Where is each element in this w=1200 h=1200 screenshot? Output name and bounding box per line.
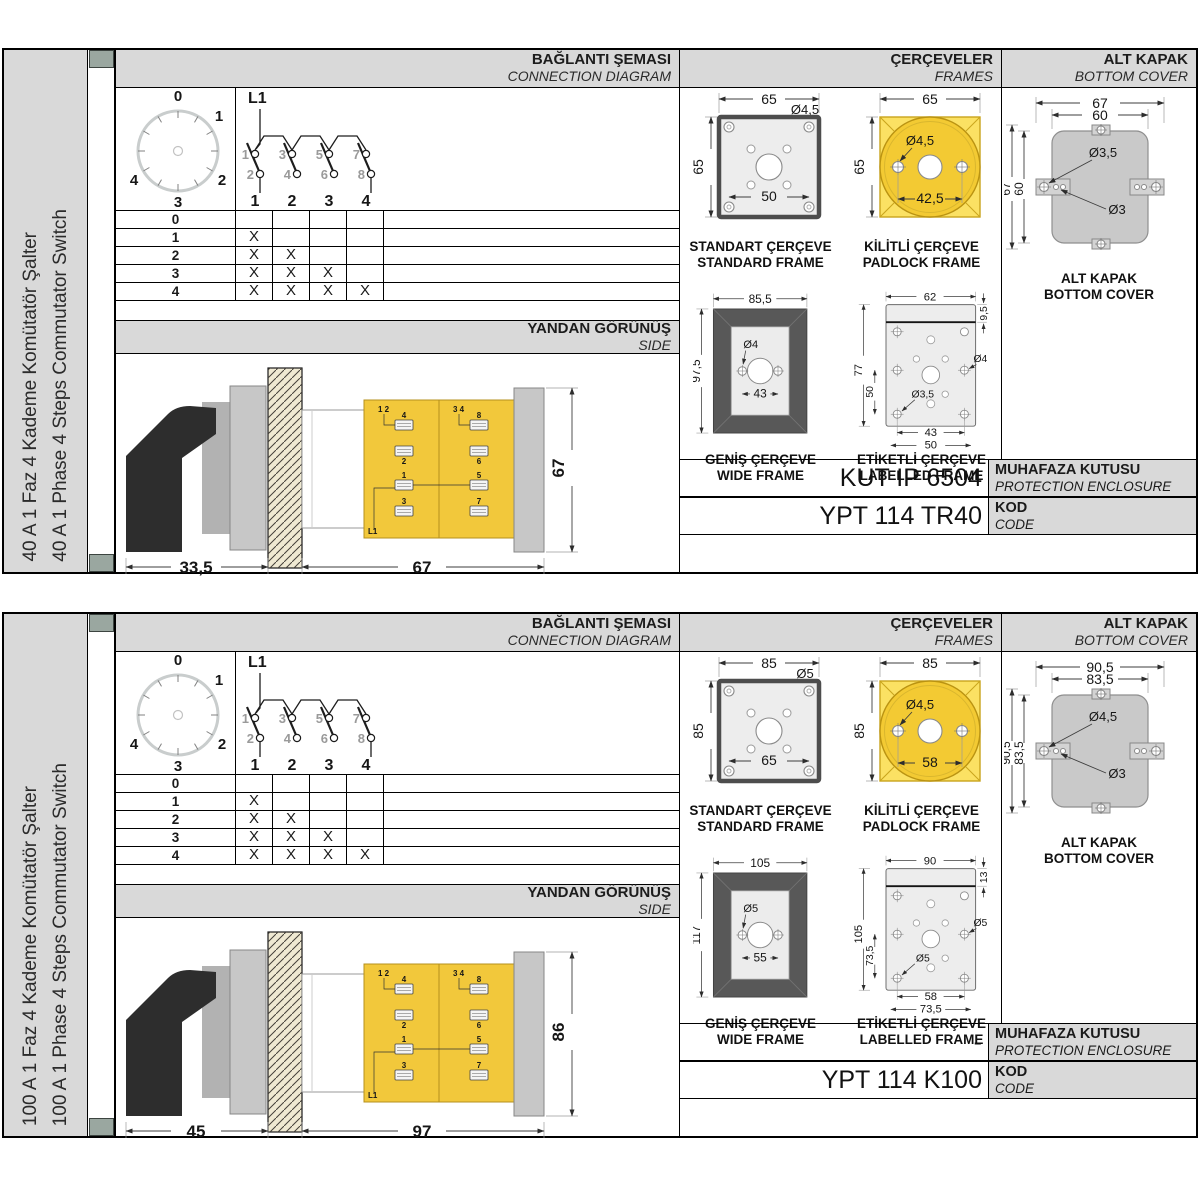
section-100a-switch: 100 A 1 Faz 4 Kademe Komütatör Şalter 10… <box>2 612 1198 1138</box>
dim-width: 65 <box>922 91 938 107</box>
dial-pos-2: 2 <box>218 172 226 189</box>
mark-cell <box>347 247 384 264</box>
mark-cell <box>310 775 347 792</box>
header-connection-tr: BAĞLANTI ŞEMASI <box>532 52 671 69</box>
pole-1: 1 <box>251 193 260 210</box>
filler-cell <box>384 247 679 264</box>
terminal-number: 2 <box>402 1021 407 1030</box>
terminal-number: 3 <box>402 497 407 506</box>
mark-cell <box>310 811 347 828</box>
row-label: 1 <box>116 793 236 810</box>
mark-cell <box>273 793 310 810</box>
table-row: 0 <box>116 210 679 228</box>
terminal-number: 8 <box>477 975 482 984</box>
enclosure-label-en: PROTECTION ENCLOSURE <box>995 479 1196 494</box>
housing <box>302 410 364 528</box>
side-view-cell: 1 2 3 4 4 2 8 6 1 3 5 7 L1 <box>116 354 679 572</box>
terminal-pair-label: 1 2 <box>378 969 390 978</box>
mark-cell: X <box>236 829 273 846</box>
side-header-en: SIDE <box>638 902 671 918</box>
contact-diagram: L1 <box>236 87 680 210</box>
terminal-pair-label: 3 4 <box>453 405 465 414</box>
pole-4: 4 <box>362 757 371 774</box>
product-title-english: 40 A 1 Phase 4 Steps Commutator Switch <box>50 209 72 562</box>
dim-inner-height: 73,5 <box>865 945 876 965</box>
header-frames-en: FRAMES <box>935 69 993 85</box>
side-view-cell: 1 2 3 4 4 2 8 6 1 3 5 7 L1 <box>116 918 679 1136</box>
enclosure-row: KUT IP 6504 MUHAFAZA KUTUSU PROTECTION E… <box>680 459 1196 496</box>
contact-5: 5 <box>316 711 323 726</box>
dim-height: 97,5 <box>693 359 703 383</box>
dial-pos-2: 2 <box>218 736 226 753</box>
back-plate <box>514 952 544 1116</box>
table-row: 4 X X X X <box>116 846 679 864</box>
contact-2: 2 <box>247 731 254 746</box>
mark-cell <box>236 775 273 792</box>
row-label: 0 <box>116 775 236 792</box>
table-row: 4 X X X X <box>116 282 679 300</box>
contacts-cell: L1 <box>236 651 679 774</box>
header-frames: ÇERÇEVELER FRAMES <box>680 50 1002 87</box>
bottom-cover-column: 67 60 67 60 <box>1002 87 1196 459</box>
dim-inner-height: 50 <box>865 386 876 398</box>
corner-marker-top <box>89 614 114 632</box>
hole-diameter-right: Ø5 <box>973 918 987 929</box>
dial-pos-1: 1 <box>215 672 223 689</box>
hole-diameter-tab: Ø4,5 <box>1089 709 1117 724</box>
contact-7: 7 <box>353 711 360 726</box>
mark-cell: X <box>236 793 273 810</box>
terminal-number: 2 <box>402 457 407 466</box>
front-plate <box>230 386 266 550</box>
dim-height: 67 <box>549 459 568 478</box>
pole-2: 2 <box>288 193 297 210</box>
caption-en: PADLOCK FRAME <box>841 819 1002 835</box>
dim-hole-pitch: 65 <box>761 752 777 768</box>
code-row: YPT 114 TR40 KOD CODE <box>680 496 1196 535</box>
enclosure-label: MUHAFAZA KUTUSU PROTECTION ENCLOSURE <box>988 1024 1196 1060</box>
contact-4: 4 <box>284 731 292 746</box>
dial-pos-3: 3 <box>174 758 182 774</box>
product-title-turkish: 100 A 1 Faz 4 Kademe Komütatör Şalter <box>20 786 42 1126</box>
padlock-frame-drawing: 65 65 <box>842 87 1002 239</box>
row-label: 4 <box>116 847 236 864</box>
terminal-number: 4 <box>402 411 407 420</box>
bottom-cover-drawing: 90,5 83,5 90,5 83,5 <box>1004 659 1194 835</box>
code-row: YPT 114 K100 KOD CODE <box>680 1060 1196 1099</box>
wide-frame-drawing: 85,5 Ø4 <box>693 290 829 452</box>
bottom-cover-column: 90,5 83,5 90,5 83,5 <box>1002 651 1196 1023</box>
dim-pitch-1: 58 <box>924 991 936 1003</box>
phase-l1-label: L1 <box>248 90 267 107</box>
dim-width: 85,5 <box>748 292 772 306</box>
mark-cell: X <box>236 283 273 300</box>
hole-diameter: Ø4,5 <box>905 697 933 712</box>
header-cover-tr: ALT KAPAK <box>1104 52 1188 69</box>
dim-height: 117 <box>693 925 703 944</box>
filler-cell <box>384 829 679 846</box>
caption-tr: KİLİTLİ ÇERÇEVE <box>841 239 1002 255</box>
mark-cell: X <box>273 829 310 846</box>
filler-cell <box>384 775 679 792</box>
mark-cell <box>347 793 384 810</box>
mark-cell <box>347 229 384 246</box>
dim-pitch-1: 43 <box>924 427 936 439</box>
bottom-cover-drawing: 67 60 67 60 <box>1004 95 1194 271</box>
connection-column: 0 1 2 3 4 L1 <box>116 87 680 572</box>
housing <box>302 974 364 1092</box>
dim-width-inner: 83,5 <box>1086 671 1113 687</box>
hole-diameter-tab: Ø3,5 <box>1089 145 1117 160</box>
product-code-value: YPT 114 TR40 <box>680 498 988 534</box>
contact-3: 3 <box>279 711 286 726</box>
header-frames-en: FRAMES <box>935 633 993 649</box>
enclosure-row: - MUHAFAZA KUTUSU PROTECTION ENCLOSURE <box>680 1023 1196 1060</box>
section-40a-switch: 40 A 1 Faz 4 Kademe Komütatör Şalter 40 … <box>2 48 1198 574</box>
hole-diameter: Ø5 <box>743 903 758 915</box>
table-row: 1 X <box>116 792 679 810</box>
back-plate <box>514 388 544 552</box>
dim-height: 85 <box>851 723 867 739</box>
terminal-l1: L1 <box>368 1091 378 1100</box>
pole-4: 4 <box>362 193 371 210</box>
terminal-number: 5 <box>477 471 482 480</box>
header-connection-en: CONNECTION DIAGRAM <box>508 633 671 649</box>
dim-pitch-2: 50 <box>924 440 936 452</box>
mark-cell <box>347 829 384 846</box>
connection-column: 0 1 2 3 4 L1 <box>116 651 680 1136</box>
padlock-frame-cell: 85 85 <box>841 651 1002 854</box>
side-view-drawing: 1 2 3 4 4 2 8 6 1 3 5 7 L1 <box>116 362 680 580</box>
mark-cell: X <box>310 283 347 300</box>
contact-8: 8 <box>358 731 365 746</box>
wide-frame-drawing: 105 Ø5 <box>693 854 829 1016</box>
mark-cell: X <box>236 847 273 864</box>
mark-cell: X <box>273 265 310 282</box>
filler-cell <box>384 793 679 810</box>
dial-pos-0: 0 <box>174 88 182 105</box>
dim-width-inner: 60 <box>1092 107 1108 123</box>
dim-height: 65 <box>851 159 867 175</box>
dim-width: 85 <box>761 655 777 671</box>
hole-diameter-small: Ø3 <box>1108 766 1125 781</box>
terminal-l1: L1 <box>368 527 378 536</box>
mark-cell <box>347 265 384 282</box>
switching-table: 0 1 X 2 X X <box>116 210 679 301</box>
wide-frame-cell: 105 Ø5 <box>680 854 841 1023</box>
enclosure-value: KUT IP 6504 <box>680 460 988 496</box>
table-row: 3 X X X <box>116 264 679 282</box>
caption-en: PADLOCK FRAME <box>841 255 1002 271</box>
dim-height-inner: 83,5 <box>1012 741 1026 765</box>
code-rows: KUT IP 6504 MUHAFAZA KUTUSU PROTECTION E… <box>680 459 1196 535</box>
mark-cell <box>236 211 273 228</box>
caption-tr: ALT KAPAK <box>1002 271 1196 287</box>
mark-cell <box>273 211 310 228</box>
filler-cell <box>384 229 679 246</box>
corner-marker-bottom <box>89 1118 114 1136</box>
column-headers: BAĞLANTI ŞEMASI CONNECTION DIAGRAM ÇERÇE… <box>116 50 1196 88</box>
row-label: 3 <box>116 265 236 282</box>
pole-2: 2 <box>288 757 297 774</box>
front-plate <box>230 950 266 1114</box>
contacts-cell: L1 <box>236 87 679 210</box>
contact-diagram: L1 <box>236 651 680 774</box>
code-label: KOD CODE <box>988 498 1196 534</box>
mark-cell: X <box>236 247 273 264</box>
padlock-frame-drawing: 85 85 <box>842 651 1002 803</box>
dim-body-length: 67 <box>413 558 432 577</box>
standard-frame-cell: 65 Ø4,5 65 <box>680 87 841 290</box>
corner-marker-top <box>89 50 114 68</box>
pole-3: 3 <box>325 757 334 774</box>
contact-1: 1 <box>242 711 249 726</box>
mark-cell: X <box>347 283 384 300</box>
mark-cell <box>310 247 347 264</box>
row-label: 4 <box>116 283 236 300</box>
catalog-page: { "colors": { "accent_yellow": "#f2c83b"… <box>0 0 1200 1200</box>
caption-tr: KİLİTLİ ÇERÇEVE <box>841 803 1002 819</box>
standard-frame-cell: 85 Ø5 85 <box>680 651 841 854</box>
mark-cell: X <box>273 247 310 264</box>
dim-handle-depth: 45 <box>187 1122 206 1141</box>
dim-width: 90 <box>923 856 935 868</box>
mark-cell <box>347 775 384 792</box>
caption-en: STANDARD FRAME <box>680 255 841 271</box>
header-bottom-cover: ALT KAPAK BOTTOM COVER <box>1002 614 1196 651</box>
dim-height-inner: 60 <box>1012 182 1026 196</box>
dial-pos-3: 3 <box>174 194 182 210</box>
mark-cell <box>273 229 310 246</box>
code-label-en: CODE <box>995 517 1196 532</box>
dim-handle-depth: 33,5 <box>179 558 212 577</box>
enclosure-label-tr: MUHAFAZA KUTUSU <box>995 1026 1196 1042</box>
hole-diameter-right: Ø4 <box>973 354 987 365</box>
dim-hole-pitch: 42,5 <box>916 190 943 206</box>
filler-cell <box>384 211 679 228</box>
dim-width: 62 <box>923 292 935 304</box>
standard-frame-drawing: 65 Ø4,5 65 <box>681 87 841 239</box>
code-label-tr: KOD <box>995 1064 1196 1080</box>
section-sidebar: 100 A 1 Faz 4 Kademe Komütatör Şalter 10… <box>4 614 88 1136</box>
terminal-pair-label: 3 4 <box>453 969 465 978</box>
pole-1: 1 <box>251 757 260 774</box>
header-frames-tr: ÇERÇEVELER <box>890 616 993 633</box>
terminal-number: 1 <box>402 471 407 480</box>
mark-cell <box>310 793 347 810</box>
dim-hole-pitch: 58 <box>922 754 938 770</box>
table-row: 2 X X <box>116 810 679 828</box>
mark-cell: X <box>310 829 347 846</box>
dim-width: 65 <box>761 91 777 107</box>
header-connection-diagram: BAĞLANTI ŞEMASI CONNECTION DIAGRAM <box>116 50 680 87</box>
dim-pitch-2: 73,5 <box>919 1004 941 1016</box>
phase-l1-label: L1 <box>248 654 267 671</box>
dial-pos-4: 4 <box>130 736 139 753</box>
code-label: KOD CODE <box>988 1062 1196 1098</box>
terminal-number: 7 <box>477 497 482 506</box>
row-label: 3 <box>116 829 236 846</box>
terminal-pair-label: 1 2 <box>378 405 390 414</box>
mark-cell <box>347 211 384 228</box>
mark-cell: X <box>236 229 273 246</box>
mark-cell: X <box>273 811 310 828</box>
side-header-en: SIDE <box>638 338 671 354</box>
contact-4: 4 <box>284 167 292 182</box>
dim-height: 86 <box>549 1023 568 1042</box>
mark-cell: X <box>236 811 273 828</box>
dim-width: 85 <box>922 655 938 671</box>
hole-diameter-left: Ø3,5 <box>911 389 934 400</box>
filler-cell <box>384 847 679 864</box>
contact-3: 3 <box>279 147 286 162</box>
switching-table: 0 1 X 2 X X <box>116 774 679 865</box>
mark-cell: X <box>310 265 347 282</box>
contact-1: 1 <box>242 147 249 162</box>
dim-strip: 13 <box>978 871 989 883</box>
caption-en: STANDARD FRAME <box>680 819 841 835</box>
contact-6: 6 <box>321 731 328 746</box>
hole-diameter-left: Ø5 <box>915 953 929 964</box>
labelled-frame-drawing: 62 9,5 77 50 <box>854 290 990 452</box>
filler-cell <box>384 265 679 282</box>
dim-hole-pitch: 43 <box>753 386 767 400</box>
mark-cell <box>273 775 310 792</box>
enclosure-label-en: PROTECTION ENCLOSURE <box>995 1043 1196 1058</box>
mark-cell: X <box>273 283 310 300</box>
standard-frame-drawing: 85 Ø5 85 <box>681 651 841 803</box>
padlock-frame-cell: 65 65 <box>841 87 1002 290</box>
labelled-frame-drawing: 90 13 105 73,5 <box>854 854 990 1016</box>
table-row: 1 X <box>116 228 679 246</box>
header-connection-tr: BAĞLANTI ŞEMASI <box>532 616 671 633</box>
frames-column: 65 Ø4,5 65 <box>680 87 1002 459</box>
header-connection-en: CONNECTION DIAGRAM <box>508 69 671 85</box>
enclosure-label: MUHAFAZA KUTUSU PROTECTION ENCLOSURE <box>988 460 1196 496</box>
side-header-tr: YANDAN GÖRÜNÜŞ <box>527 885 671 902</box>
caption-en: BOTTOM COVER <box>1002 851 1196 867</box>
mark-cell <box>347 811 384 828</box>
mark-cell: X <box>236 265 273 282</box>
labelled-frame-cell: 62 9,5 77 50 <box>841 290 1002 459</box>
side-header-tr: YANDAN GÖRÜNÜŞ <box>527 321 671 338</box>
side-view-header: YANDAN GÖRÜNÜŞ SIDE <box>116 884 679 918</box>
caption-en: BOTTOM COVER <box>1002 287 1196 303</box>
dim-height: 105 <box>854 925 865 944</box>
dim-height: 85 <box>690 723 706 739</box>
mark-cell: X <box>273 847 310 864</box>
dim-hole-pitch: 55 <box>753 950 767 964</box>
header-frames-tr: ÇERÇEVELER <box>890 52 993 69</box>
header-frames: ÇERÇEVELER FRAMES <box>680 614 1002 651</box>
filler-cell <box>384 283 679 300</box>
caption-tr: STANDART ÇERÇEVE <box>680 239 841 255</box>
enclosure-value: - <box>680 1024 988 1060</box>
product-title-english: 100 A 1 Phase 4 Steps Commutator Switch <box>50 763 72 1126</box>
filler-cell <box>384 811 679 828</box>
code-rows: - MUHAFAZA KUTUSU PROTECTION ENCLOSURE Y… <box>680 1023 1196 1099</box>
terminal-number: 6 <box>477 1021 482 1030</box>
terminal-number: 7 <box>477 1061 482 1070</box>
terminal-number: 4 <box>402 975 407 984</box>
section-sidebar: 40 A 1 Faz 4 Kademe Komütatör Şalter 40 … <box>4 50 88 572</box>
contact-6: 6 <box>321 167 328 182</box>
header-cover-tr: ALT KAPAK <box>1104 616 1188 633</box>
terminal-number: 5 <box>477 1035 482 1044</box>
dim-hole-pitch: 50 <box>761 188 777 204</box>
dim-strip: 9,5 <box>978 306 989 321</box>
dial-pos-0: 0 <box>174 652 182 669</box>
enclosure-label-tr: MUHAFAZA KUTUSU <box>995 462 1196 478</box>
dim-width: 105 <box>750 856 770 870</box>
contact-8: 8 <box>358 167 365 182</box>
mark-cell <box>310 211 347 228</box>
corner-marker-bottom <box>89 554 114 572</box>
mark-cell: X <box>310 847 347 864</box>
side-view-drawing: 1 2 3 4 4 2 8 6 1 3 5 7 L1 <box>116 926 680 1144</box>
column-headers: BAĞLANTI ŞEMASI CONNECTION DIAGRAM ÇERÇE… <box>116 614 1196 652</box>
dial-cell: 0 1 2 3 4 <box>116 651 236 774</box>
table-row: 0 <box>116 774 679 792</box>
mark-cell <box>310 229 347 246</box>
row-label: 2 <box>116 247 236 264</box>
wide-frame-cell: 85,5 Ø4 <box>680 290 841 459</box>
product-code-value: YPT 114 K100 <box>680 1062 988 1098</box>
header-bottom-cover: ALT KAPAK BOTTOM COVER <box>1002 50 1196 87</box>
terminal-number: 6 <box>477 457 482 466</box>
dial-pos-1: 1 <box>215 108 223 125</box>
header-cover-en: BOTTOM COVER <box>1075 633 1188 649</box>
row-label: 0 <box>116 211 236 228</box>
frames-column: 85 Ø5 85 <box>680 651 1002 1023</box>
contact-5: 5 <box>316 147 323 162</box>
code-label-en: CODE <box>995 1081 1196 1096</box>
hole-diameter: Ø4,5 <box>905 133 933 148</box>
terminal-number: 8 <box>477 411 482 420</box>
pole-3: 3 <box>325 193 334 210</box>
terminal-number: 3 <box>402 1061 407 1070</box>
section-content: BAĞLANTI ŞEMASI CONNECTION DIAGRAM ÇERÇE… <box>114 614 1196 1136</box>
dial-diagram: 0 1 2 3 4 <box>116 87 236 210</box>
mark-cell: X <box>347 847 384 864</box>
row-label: 1 <box>116 229 236 246</box>
caption-tr: STANDART ÇERÇEVE <box>680 803 841 819</box>
dial-cell: 0 1 2 3 4 <box>116 87 236 210</box>
code-label-tr: KOD <box>995 500 1196 516</box>
section-content: BAĞLANTI ŞEMASI CONNECTION DIAGRAM ÇERÇE… <box>114 50 1196 572</box>
labelled-frame-cell: 90 13 105 73,5 <box>841 854 1002 1023</box>
row-label: 2 <box>116 811 236 828</box>
contact-2: 2 <box>247 167 254 182</box>
dim-height: 77 <box>854 364 865 376</box>
hole-diameter: Ø4 <box>743 339 758 351</box>
table-row: 3 X X X <box>116 828 679 846</box>
dim-body-length: 97 <box>413 1122 432 1141</box>
hole-diameter-small: Ø3 <box>1108 202 1125 217</box>
caption-tr: ALT KAPAK <box>1002 835 1196 851</box>
contact-7: 7 <box>353 147 360 162</box>
dim-height: 65 <box>690 159 706 175</box>
terminal-number: 1 <box>402 1035 407 1044</box>
header-connection-diagram: BAĞLANTI ŞEMASI CONNECTION DIAGRAM <box>116 614 680 651</box>
dial-pos-4: 4 <box>130 172 139 189</box>
table-row: 2 X X <box>116 246 679 264</box>
side-view-header: YANDAN GÖRÜNÜŞ SIDE <box>116 320 679 354</box>
product-title-turkish: 40 A 1 Faz 4 Kademe Komütatör Şalter <box>20 232 42 562</box>
dial-diagram: 0 1 2 3 4 <box>116 651 236 774</box>
header-cover-en: BOTTOM COVER <box>1075 69 1188 85</box>
